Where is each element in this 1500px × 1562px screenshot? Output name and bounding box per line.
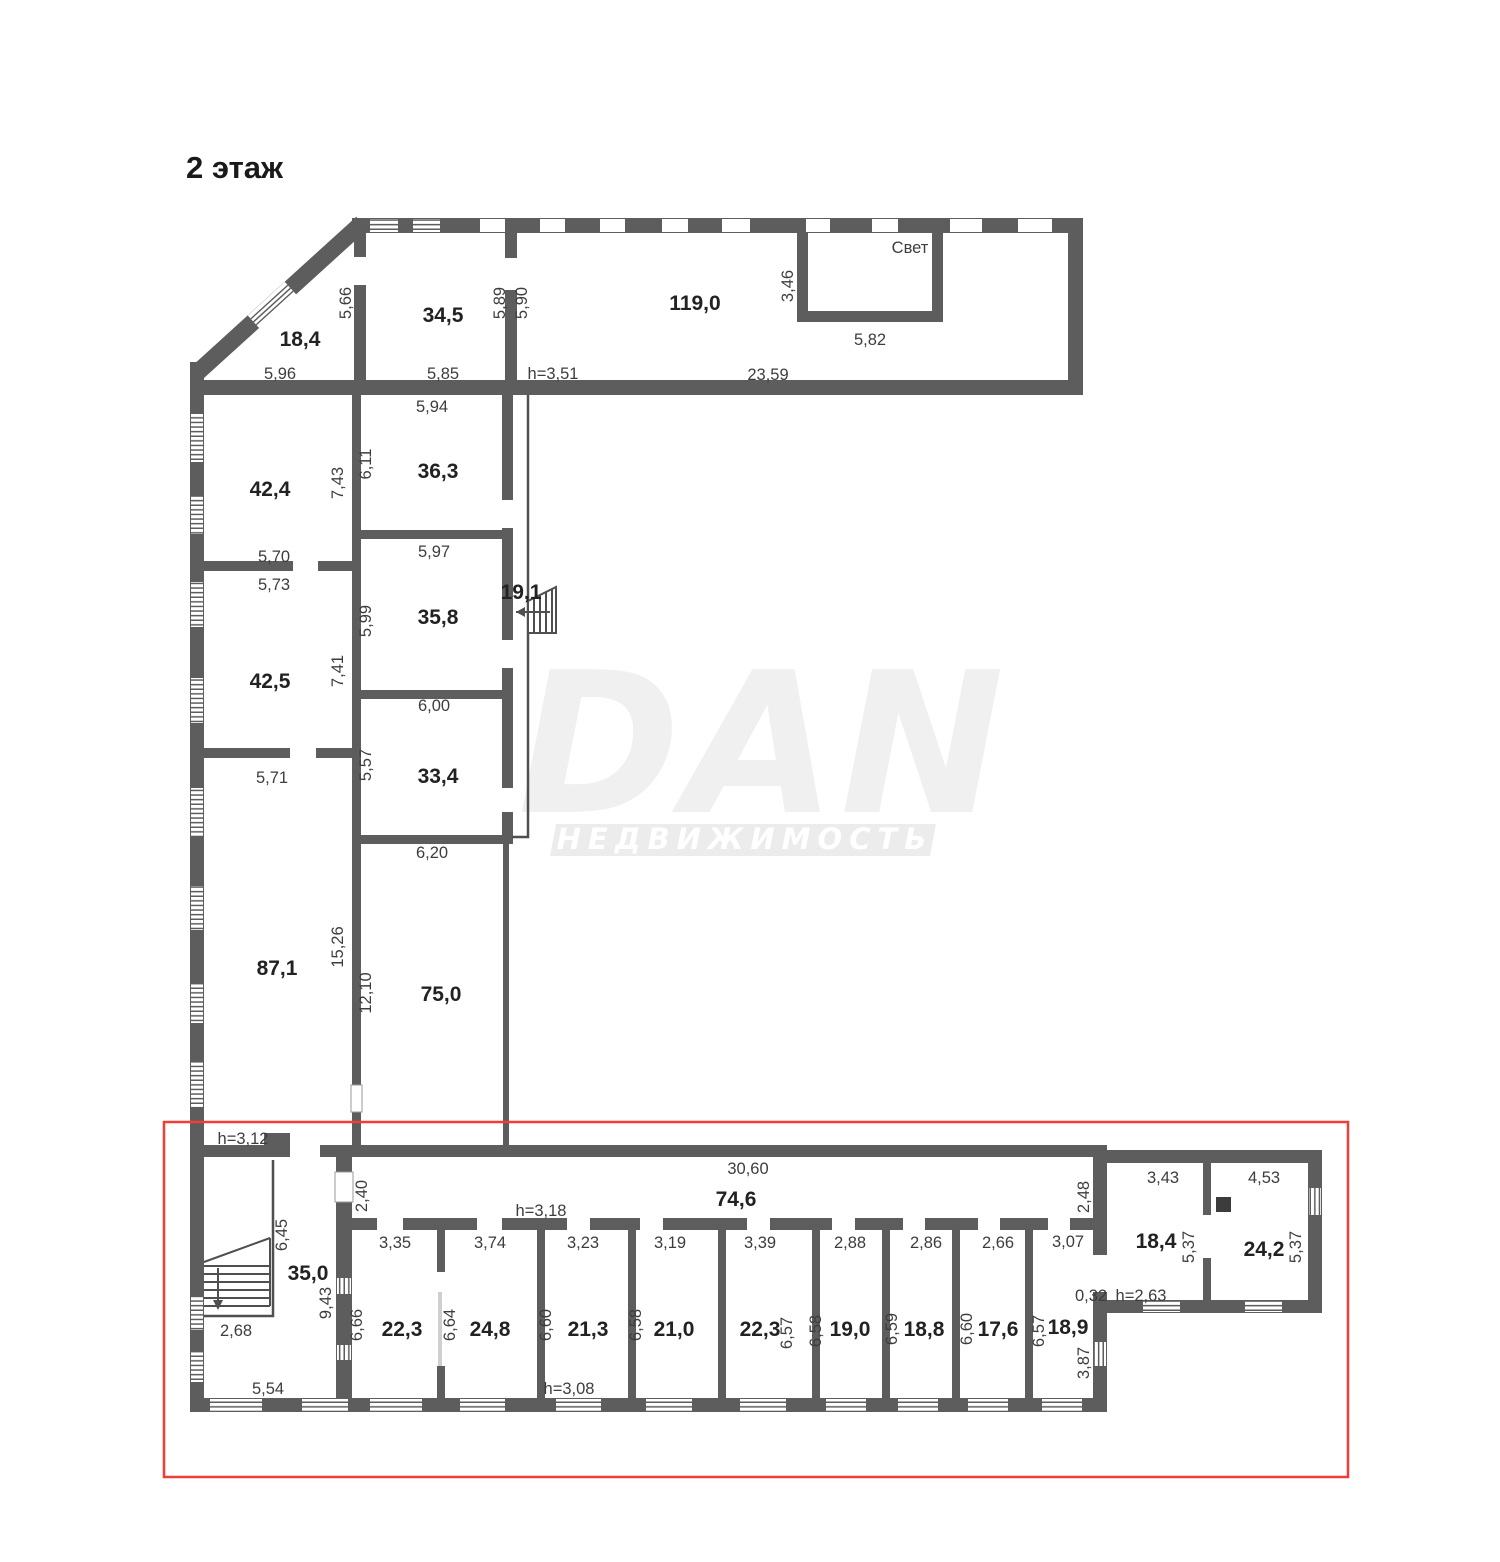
room-area-label: 19,0 (830, 1318, 871, 1341)
room-area-label: 42,5 (250, 670, 291, 693)
room-area-label: 36,3 (418, 460, 459, 483)
floor-plan-canvas: DAN НЕДВИЖИМОСТЬ (0, 0, 1500, 1562)
dimension-label: 5,37 (1287, 1231, 1305, 1263)
dimension-label: 6,45 (273, 1219, 291, 1251)
dimension-label: 6,58 (627, 1309, 645, 1341)
dimension-label: h=3,08 (544, 1380, 595, 1398)
dimension-label: 9,43 (317, 1287, 335, 1319)
room-area-label: 75,0 (421, 983, 462, 1006)
room-area-label: 21,0 (654, 1318, 695, 1341)
room-area-label: 19,1 (501, 581, 542, 604)
dimension-label: 5,57 (357, 749, 375, 781)
room-area-label: 33,4 (418, 765, 459, 788)
dimension-label: 30,60 (727, 1160, 768, 1178)
room-area-label: 18,8 (904, 1318, 945, 1341)
room-area-label: 22,3 (740, 1318, 781, 1341)
pillar (1216, 1197, 1231, 1212)
dimension-label: 5,85 (427, 365, 459, 383)
room-area-label: 42,4 (250, 478, 291, 501)
dimension-label: h=3,18 (516, 1202, 567, 1220)
room-area-label: 21,3 (568, 1318, 609, 1341)
dimension-label: 2,66 (982, 1234, 1014, 1252)
dimension-label: 5,37 (1180, 1231, 1198, 1263)
dimension-label: 12,10 (357, 972, 375, 1013)
dimension-label: 3,43 (1147, 1169, 1179, 1187)
dimension-label: 5,54 (252, 1380, 284, 1398)
room-area-label: 87,1 (257, 957, 298, 980)
dimension-label: 2,88 (834, 1234, 866, 1252)
room-area-label: 74,6 (716, 1188, 757, 1211)
dimension-label: 5,97 (418, 543, 450, 561)
room-area-label: 119,0 (669, 292, 720, 315)
diagonal-window (248, 282, 296, 328)
dimension-label: 4,53 (1248, 1169, 1280, 1187)
dimension-label: 3,87 (1075, 1347, 1093, 1379)
dimension-label: h=2,63 (1116, 1287, 1167, 1305)
dimension-label: 6,11 (357, 449, 375, 480)
dimension-label: 6,57 (778, 1317, 796, 1349)
room-area-label: 24,2 (1244, 1238, 1285, 1261)
dimension-label: 6,60 (537, 1309, 555, 1341)
room-area-label: 24,8 (470, 1318, 511, 1341)
dimension-label: 6,60 (958, 1313, 976, 1345)
room-area-label: 17,6 (978, 1318, 1019, 1341)
room-area-label: 22,3 (382, 1318, 423, 1341)
dimension-label: 3,74 (474, 1234, 506, 1252)
room-area-label: 18,9 (1048, 1316, 1089, 1339)
lightwell-label: Свет (892, 239, 929, 257)
dimension-label: 0,32 (1075, 1287, 1107, 1305)
dimension-label: 5,71 (256, 769, 288, 787)
dimension-label: 5,66 (337, 287, 355, 319)
dimension-label: h=3,51 (528, 365, 579, 383)
room-area-label: 18,4 (280, 328, 321, 351)
dimension-label: 5,73 (258, 576, 290, 594)
dimension-label: 15,26 (329, 926, 347, 967)
dimension-label: h=3,12 (218, 1130, 269, 1148)
dimension-label: 5,82 (854, 331, 886, 349)
dimension-label: 5,90 (513, 287, 531, 319)
room-area-label: 35,0 (288, 1262, 329, 1285)
dimension-label: 7,41 (329, 655, 347, 687)
dimension-label: 5,94 (416, 398, 448, 416)
watermark-subtitle: НЕДВИЖИМОСТЬ (557, 822, 934, 856)
dimension-label: 5,89 (491, 287, 509, 319)
dimension-label: 3,19 (654, 1234, 686, 1252)
dimension-label: 6,00 (418, 697, 450, 715)
dimension-label: 2,40 (353, 1180, 371, 1212)
dimension-label: 3,46 (779, 270, 797, 302)
dimension-label: 3,39 (744, 1234, 776, 1252)
dimension-label: 23,59 (747, 366, 788, 384)
dimension-label: 2,48 (1075, 1181, 1093, 1213)
room-area-label: 35,8 (418, 606, 459, 629)
dimension-label: 6,66 (348, 1309, 366, 1341)
dimension-label: 6,58 (807, 1315, 825, 1347)
room-area-label: 34,5 (423, 304, 464, 327)
watermark: DAN НЕДВИЖИМОСТЬ (518, 631, 1008, 859)
room-area-label: 18,4 (1136, 1230, 1177, 1253)
floor-plan-page: DAN НЕДВИЖИМОСТЬ (0, 0, 1500, 1562)
dimension-label: 5,99 (357, 605, 375, 637)
dimension-label: 2,68 (220, 1322, 252, 1340)
dimension-label: 7,43 (329, 467, 347, 499)
dimension-label: 5,96 (264, 365, 296, 383)
stairs-entrance-icon (204, 1238, 270, 1310)
dimension-label: 6,59 (883, 1313, 901, 1345)
dimension-label: 6,20 (416, 844, 448, 862)
dimension-label: 3,07 (1052, 1233, 1084, 1251)
page-title: 2 этаж (186, 150, 284, 185)
dimension-label: 5,70 (258, 548, 290, 566)
dimension-label: 6,64 (441, 1309, 459, 1341)
dimension-label: 2,86 (910, 1234, 942, 1252)
dimension-label: 6,57 (1030, 1315, 1048, 1347)
dimension-label: 3,23 (567, 1234, 599, 1252)
dimension-label: 3,35 (379, 1234, 411, 1252)
